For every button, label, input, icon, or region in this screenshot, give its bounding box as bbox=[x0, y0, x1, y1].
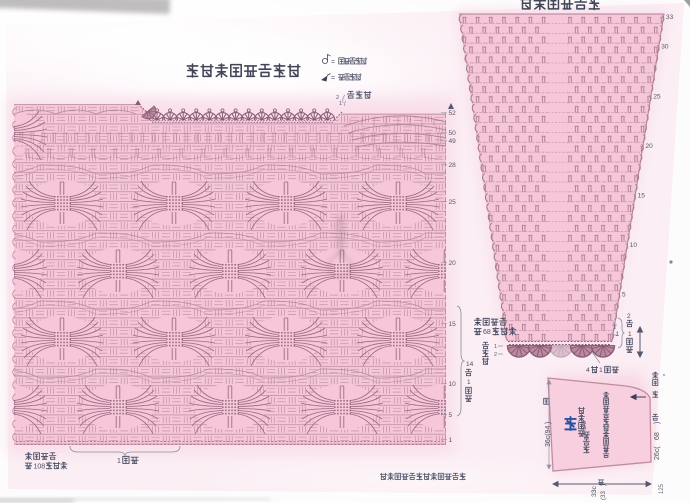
svg-text:15: 15 bbox=[449, 321, 457, 328]
svg-text:5: 5 bbox=[449, 412, 453, 419]
svg-text:1: 1 bbox=[616, 331, 620, 338]
svg-text:4: 4 bbox=[586, 367, 590, 374]
svg-text:1: 1 bbox=[599, 367, 603, 374]
svg-text:2: 2 bbox=[494, 352, 497, 358]
svg-text:): ) bbox=[545, 422, 552, 424]
svg-text:26c(: 26c( bbox=[654, 446, 661, 460]
svg-text:): ) bbox=[654, 422, 661, 424]
svg-text:1: 1 bbox=[628, 331, 632, 338]
svg-text:125: 125 bbox=[659, 483, 665, 494]
svg-text:=: = bbox=[331, 75, 335, 82]
svg-text:50: 50 bbox=[449, 130, 457, 137]
svg-text:108: 108 bbox=[34, 464, 46, 471]
svg-text:5/0: 5/0 bbox=[581, 421, 588, 430]
svg-text:33c: 33c bbox=[591, 485, 598, 497]
svg-text:49: 49 bbox=[449, 138, 457, 145]
svg-text:1: 1 bbox=[494, 344, 497, 350]
svg-text:2: 2 bbox=[627, 313, 631, 320]
svg-text:68: 68 bbox=[483, 329, 491, 336]
svg-text:10: 10 bbox=[630, 242, 638, 249]
svg-text:20: 20 bbox=[646, 143, 654, 150]
svg-text:1: 1 bbox=[613, 325, 616, 331]
svg-text:10: 10 bbox=[449, 381, 457, 388]
svg-text:(33: (33 bbox=[600, 490, 607, 500]
svg-text:30: 30 bbox=[661, 44, 669, 51]
svg-text:52: 52 bbox=[449, 110, 457, 117]
svg-text:25: 25 bbox=[653, 93, 661, 100]
svg-text:1: 1 bbox=[449, 437, 453, 444]
svg-text:36c(94: 36c(94 bbox=[545, 425, 552, 447]
svg-text:1: 1 bbox=[467, 379, 471, 386]
svg-text:14: 14 bbox=[466, 361, 474, 368]
svg-text:): ) bbox=[600, 484, 607, 486]
svg-text:33: 33 bbox=[666, 14, 674, 21]
svg-text:68: 68 bbox=[654, 432, 661, 440]
svg-text:5: 5 bbox=[622, 291, 626, 298]
svg-text:25: 25 bbox=[449, 199, 457, 206]
svg-text:=: = bbox=[331, 59, 335, 66]
svg-text:15: 15 bbox=[638, 192, 646, 199]
svg-text:28: 28 bbox=[449, 162, 457, 169]
svg-text:1: 1 bbox=[117, 458, 121, 465]
svg-text:20: 20 bbox=[449, 260, 457, 267]
svg-text:1: 1 bbox=[339, 101, 342, 107]
